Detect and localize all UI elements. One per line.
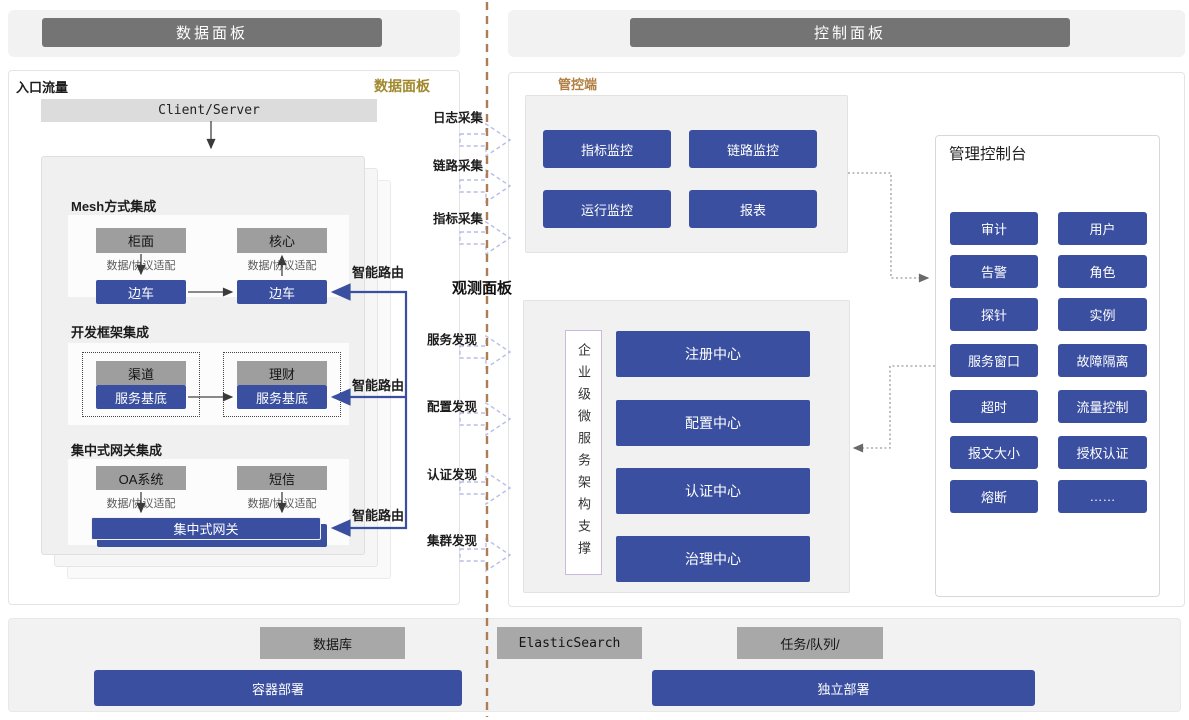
counter-box: 柜面 (96, 228, 186, 253)
container-deploy-label: 容器部署 (252, 679, 304, 698)
timeout-box: 超时 (950, 390, 1038, 423)
flow-control-box: 流量控制 (1058, 390, 1147, 423)
smart-route-label-1: 智能路由 (352, 262, 404, 281)
task-queue-label: 任务/队列/ (780, 634, 839, 653)
microservice-support-label: 企业级微服务架构支撑 (574, 343, 593, 563)
governance-center-box: 治理中心 (616, 536, 810, 582)
task-queue-box: 任务/队列/ (737, 627, 883, 659)
circuit-break-label: 熔断 (981, 487, 1007, 506)
registry-center-label: 注册中心 (685, 344, 741, 364)
oa-system-label: OA系统 (119, 469, 164, 488)
authorization-box: 授权认证 (1058, 436, 1147, 469)
database-label: 数据库 (313, 634, 352, 653)
metric-monitor-box: 指标监控 (543, 130, 671, 168)
config-discovery-label: 配置发现 (427, 396, 477, 415)
central-gateway-box: 集中式网关 (91, 517, 321, 540)
trace-collect-label: 链路采集 (433, 155, 483, 174)
fault-isolation-label: 故障隔离 (1076, 351, 1128, 370)
service-window-label: 服务窗口 (968, 351, 1020, 370)
runtime-monitor-label: 运行监控 (581, 200, 633, 219)
data-plane-header-label: 数据面板 (176, 22, 248, 43)
message-size-box: 报文大小 (950, 436, 1038, 469)
mesh-left-adapter-label: 数据/协议适配 (96, 257, 186, 273)
control-plane-header-label: 控制面板 (814, 22, 886, 43)
smart-route-label-3: 智能路由 (352, 505, 404, 524)
gateway-right-adapter-label: 数据/协议适配 (237, 495, 327, 511)
service-window-box: 服务窗口 (950, 344, 1038, 377)
service-base-right-label: 服务基底 (256, 388, 308, 407)
more-box: …… (1058, 480, 1147, 513)
wealth-label: 理财 (269, 364, 295, 383)
wealth-box: 理财 (237, 361, 327, 385)
metric-monitor-label: 指标监控 (581, 140, 633, 159)
control-plane-header: 控制面板 (630, 18, 1070, 47)
smart-route-label-2: 智能路由 (352, 375, 404, 394)
monitor-panel (525, 95, 848, 253)
central-gateway-label: 集中式网关 (173, 519, 238, 538)
auth-center-label: 认证中心 (685, 481, 741, 501)
mesh-right-adapter-label: 数据/协议适配 (237, 257, 327, 273)
user-label: 用户 (1089, 219, 1115, 238)
instance-label: 实例 (1089, 305, 1115, 324)
gateway-left-adapter-label: 数据/协议适配 (96, 495, 186, 511)
channel-label: 渠道 (128, 364, 154, 383)
mesh-section-title: Mesh方式集成 (71, 196, 156, 215)
container-deploy-box: 容器部署 (94, 670, 462, 706)
circuit-break-box: 熔断 (950, 480, 1038, 513)
log-collect-label: 日志采集 (433, 107, 483, 126)
oa-system-box: OA系统 (96, 466, 186, 490)
runtime-monitor-box: 运行监控 (543, 190, 671, 228)
sidecar-right-box: 边车 (237, 280, 327, 304)
sms-box: 短信 (237, 466, 327, 490)
auth-center-box: 认证中心 (616, 468, 810, 514)
audit-box: 审计 (950, 212, 1038, 245)
message-size-label: 报文大小 (968, 443, 1020, 462)
standalone-deploy-box: 独立部署 (652, 670, 1035, 706)
management-end-label: 管控端 (558, 74, 597, 93)
standalone-deploy-label: 独立部署 (817, 679, 869, 698)
audit-label: 审计 (981, 219, 1007, 238)
management-console-title: 管理控制台 (949, 142, 1027, 164)
role-box: 角色 (1058, 255, 1147, 288)
microservice-support-box: 企业级微服务架构支撑 (565, 330, 602, 575)
service-base-left-box: 服务基底 (96, 385, 186, 409)
elasticsearch-label: ElasticSearch (519, 636, 621, 651)
timeout-label: 超时 (981, 397, 1007, 416)
auth-discovery-label: 认证发现 (427, 464, 477, 483)
channel-box: 渠道 (96, 361, 186, 385)
framework-section-title: 开发框架集成 (71, 322, 149, 341)
flow-control-label: 流量控制 (1076, 397, 1128, 416)
service-discovery-label: 服务发现 (427, 329, 477, 348)
service-base-left-label: 服务基底 (115, 388, 167, 407)
role-label: 角色 (1089, 262, 1115, 281)
probe-box: 探针 (950, 298, 1038, 331)
authorization-label: 授权认证 (1076, 443, 1128, 462)
data-plane-corner-label: 数据面板 (374, 76, 430, 96)
sidecar-left-box: 边车 (96, 280, 186, 304)
service-base-right-box: 服务基底 (237, 385, 327, 409)
elasticsearch-box: ElasticSearch (497, 627, 642, 659)
log-collect-arrow-icon (460, 124, 510, 156)
fault-isolation-box: 故障隔离 (1058, 344, 1147, 377)
sidecar-right-label: 边车 (269, 283, 295, 302)
metric-collect-label: 指标采集 (433, 208, 483, 227)
alert-label: 告警 (981, 262, 1007, 281)
architecture-diagram: 数据面板 控制面板 入口流量 数据面板 Client/Server Mesh方式… (0, 0, 1189, 720)
trace-monitor-label: 链路监控 (727, 140, 779, 159)
client-server-box: Client/Server (41, 99, 377, 122)
trace-monitor-box: 链路监控 (689, 130, 817, 168)
inbound-traffic-label: 入口流量 (16, 77, 68, 96)
report-box: 报表 (689, 190, 817, 228)
database-box: 数据库 (260, 627, 405, 659)
alert-box: 告警 (950, 255, 1038, 288)
instance-box: 实例 (1058, 298, 1147, 331)
sms-label: 短信 (269, 469, 295, 488)
more-label: …… (1090, 489, 1116, 504)
counter-label: 柜面 (128, 231, 154, 250)
report-label: 报表 (740, 200, 766, 219)
gateway-section-title: 集中式网关集成 (71, 440, 162, 459)
core-label: 核心 (269, 231, 295, 250)
config-center-label: 配置中心 (685, 413, 741, 433)
observe-plane-title: 观测面板 (452, 277, 512, 298)
data-plane-header: 数据面板 (42, 18, 382, 47)
core-box: 核心 (237, 228, 327, 253)
client-server-label: Client/Server (158, 103, 260, 118)
trace-collect-arrow-icon (460, 170, 510, 202)
sidecar-left-label: 边车 (128, 283, 154, 302)
registry-center-box: 注册中心 (616, 331, 810, 377)
user-box: 用户 (1058, 212, 1147, 245)
config-center-box: 配置中心 (616, 400, 810, 446)
governance-center-label: 治理中心 (685, 549, 741, 569)
probe-label: 探针 (981, 305, 1007, 324)
cluster-discovery-label: 集群发现 (427, 530, 477, 549)
